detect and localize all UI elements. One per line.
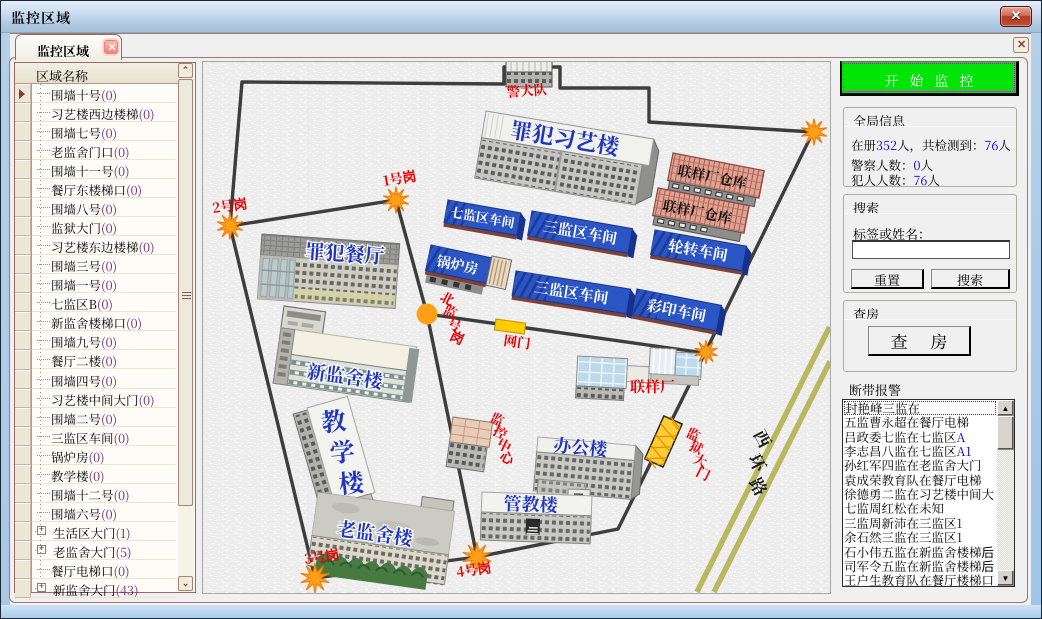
svg-text:管教楼: 管教楼 <box>503 490 560 518</box>
svg-text:警犬队: 警犬队 <box>506 78 548 101</box>
svg-text:联样厂: 联样厂 <box>630 376 675 397</box>
svg-text:办公楼: 办公楼 <box>552 431 610 462</box>
svg-text:罪犯餐厅: 罪犯餐厅 <box>304 235 386 270</box>
svg-text:网门: 网门 <box>502 329 532 353</box>
